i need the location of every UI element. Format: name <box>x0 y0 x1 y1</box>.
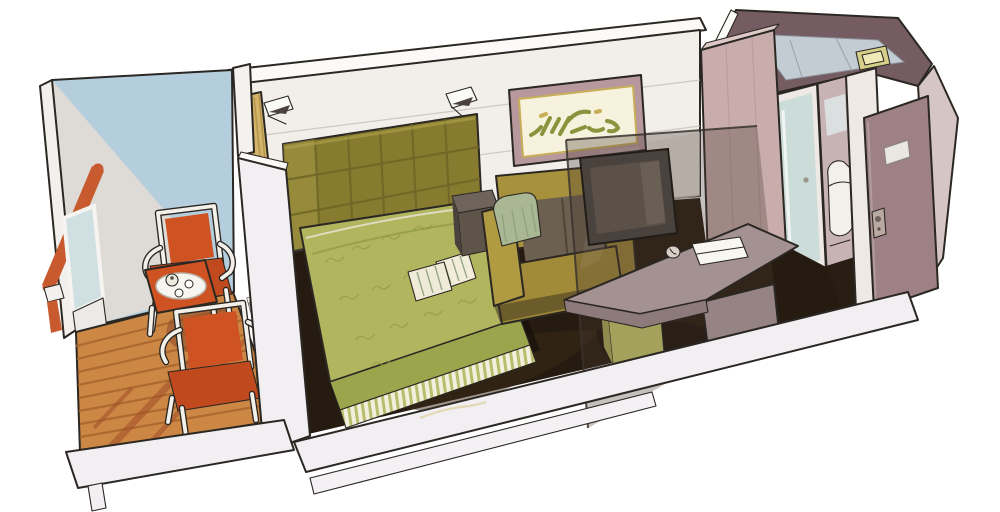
door-handle <box>872 208 886 238</box>
cabin-cutaway-svg <box>0 0 1000 512</box>
entry-door <box>864 96 938 310</box>
chair-backrest <box>165 213 214 264</box>
railing-glass-panel <box>64 206 103 312</box>
illustration-stage <box>0 0 1000 512</box>
tv-screen <box>580 149 677 245</box>
toilet <box>828 161 852 236</box>
chair-backrest <box>183 311 243 369</box>
coffee-cup <box>185 280 193 288</box>
telephone <box>666 246 680 258</box>
divider-post <box>233 64 254 156</box>
coffee-pot <box>166 274 178 286</box>
bathroom-mirror <box>824 94 847 136</box>
coffee-cup <box>175 289 183 297</box>
shower-door-handle <box>803 177 808 182</box>
sofa-bolster-pillow <box>494 193 541 246</box>
support-leg <box>88 483 106 511</box>
